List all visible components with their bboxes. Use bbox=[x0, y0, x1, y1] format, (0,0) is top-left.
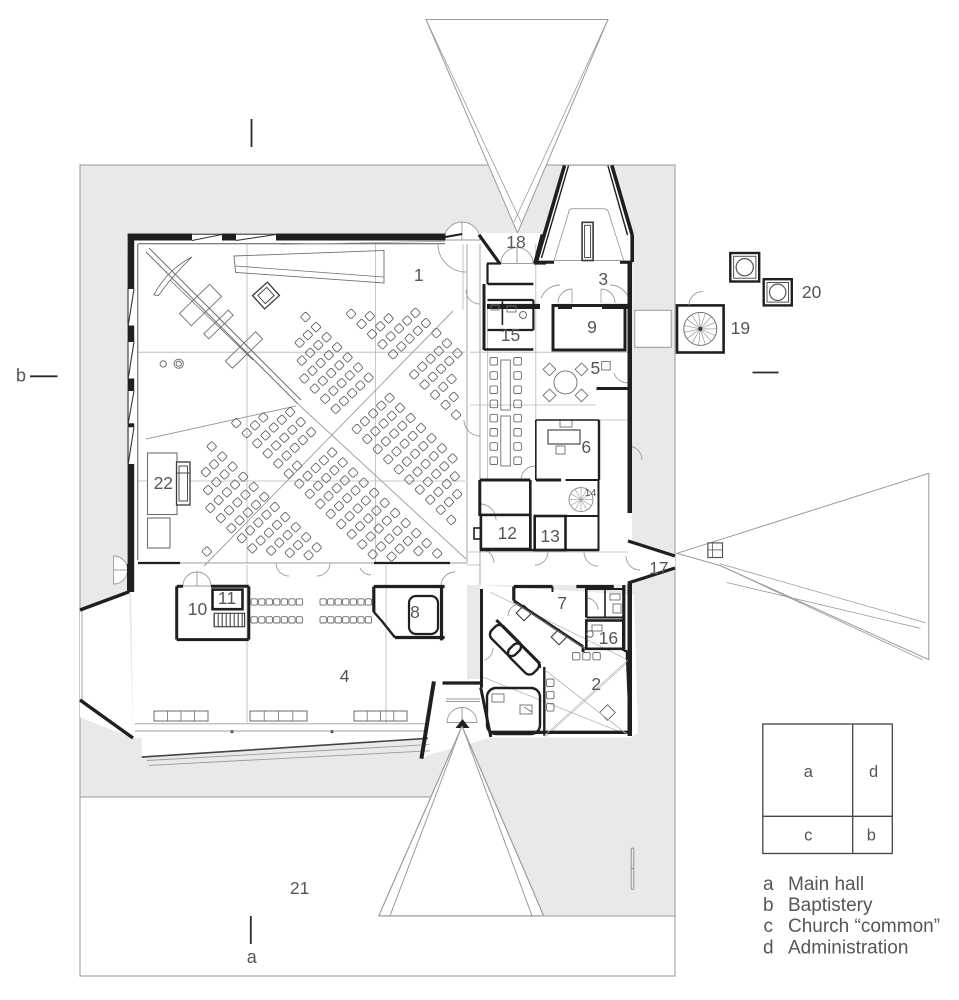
svg-text:b: b bbox=[867, 827, 876, 845]
svg-text:Main hall: Main hall bbox=[788, 874, 864, 895]
svg-text:21: 21 bbox=[290, 878, 309, 898]
svg-text:8: 8 bbox=[410, 602, 420, 622]
svg-text:c: c bbox=[804, 827, 812, 845]
svg-text:b: b bbox=[763, 895, 774, 916]
svg-text:6: 6 bbox=[581, 437, 591, 457]
svg-text:3: 3 bbox=[598, 269, 608, 289]
svg-text:20: 20 bbox=[802, 282, 822, 302]
svg-text:5: 5 bbox=[591, 358, 601, 378]
svg-text:15: 15 bbox=[501, 325, 520, 345]
svg-text:14: 14 bbox=[585, 487, 597, 499]
svg-text:18: 18 bbox=[506, 232, 525, 252]
svg-text:16: 16 bbox=[599, 628, 618, 648]
svg-text:d: d bbox=[763, 937, 774, 958]
svg-text:13: 13 bbox=[540, 526, 559, 546]
svg-text:c: c bbox=[764, 916, 774, 937]
svg-text:Church “common”: Church “common” bbox=[788, 916, 940, 937]
svg-text:Baptistery: Baptistery bbox=[788, 895, 873, 916]
svg-text:Administration: Administration bbox=[788, 937, 908, 958]
svg-text:10: 10 bbox=[188, 599, 208, 619]
svg-text:11: 11 bbox=[218, 588, 236, 608]
svg-text:9: 9 bbox=[587, 317, 597, 337]
svg-text:b: b bbox=[16, 366, 26, 386]
svg-text:17: 17 bbox=[649, 558, 668, 578]
svg-text:4: 4 bbox=[340, 666, 350, 686]
svg-text:a: a bbox=[763, 874, 774, 895]
svg-text:a: a bbox=[804, 763, 814, 781]
svg-text:a: a bbox=[247, 947, 258, 967]
svg-text:d: d bbox=[869, 763, 878, 781]
svg-text:7: 7 bbox=[557, 593, 567, 613]
svg-text:2: 2 bbox=[591, 674, 601, 694]
svg-text:12: 12 bbox=[498, 523, 517, 543]
svg-text:1: 1 bbox=[414, 265, 424, 285]
svg-text:19: 19 bbox=[731, 318, 750, 338]
svg-text:22: 22 bbox=[154, 473, 173, 493]
